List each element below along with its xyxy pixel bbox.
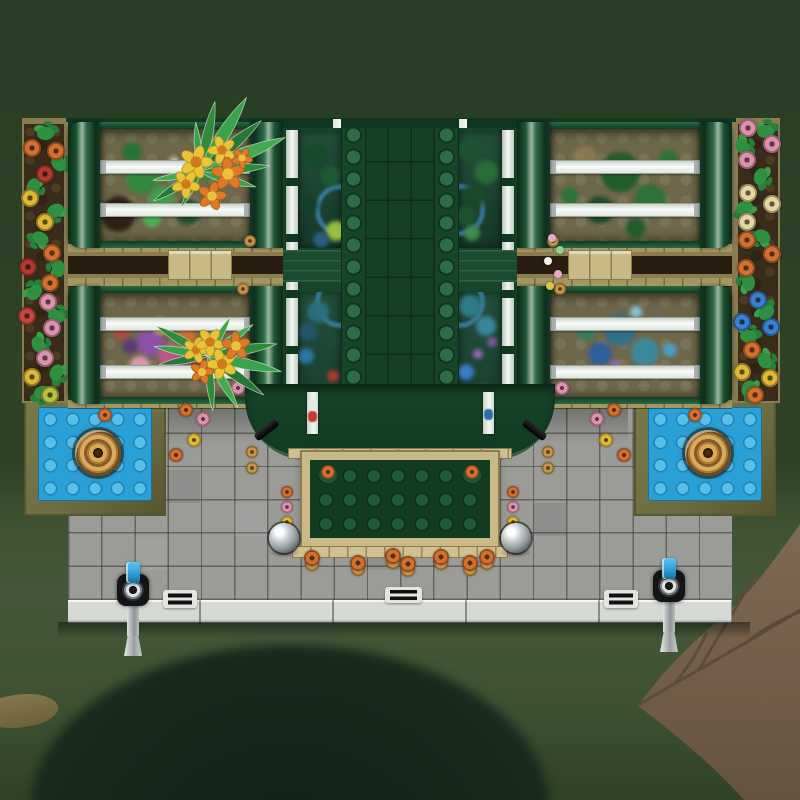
ridge-stud-column — [434, 124, 459, 424]
fountain-pool — [648, 407, 762, 501]
gold-fitting — [246, 462, 258, 474]
border-flower — [762, 318, 780, 336]
flower-bouquet — [90, 82, 310, 262]
lamp-blue-glass — [662, 558, 676, 579]
gold-fitting — [246, 446, 258, 458]
border-flower — [739, 184, 757, 202]
barrel-cap — [700, 122, 732, 248]
border-flower — [743, 341, 761, 359]
interior-plant-blob — [476, 316, 496, 336]
tiny-flower — [546, 282, 554, 290]
lamp-pole-upper — [127, 602, 139, 636]
roof-vent-tick — [333, 119, 341, 128]
plant-blob — [588, 342, 612, 366]
border-flower — [43, 319, 61, 337]
border-flower — [19, 258, 37, 276]
lego-greenhouse-model — [0, 0, 800, 800]
lamp-blue-glass — [126, 562, 140, 583]
fountain-platform — [634, 400, 776, 516]
canopy-side-flower — [507, 486, 519, 498]
tiny-flower — [548, 234, 556, 242]
interior-plant-blob — [459, 138, 482, 162]
trim-flower-orange — [479, 549, 495, 565]
barrel-cap — [700, 286, 732, 404]
drainage-grate — [163, 590, 197, 608]
barrel-cap — [517, 122, 550, 248]
gold-fitting — [554, 283, 566, 295]
lamp-pole-upper — [663, 598, 675, 632]
canopy-side-flower — [281, 486, 293, 498]
tiny-flower — [556, 246, 564, 254]
drainage-grate — [604, 590, 638, 608]
canopy-studs — [314, 464, 486, 534]
border-flower — [739, 119, 757, 137]
wing-rail — [550, 286, 700, 293]
greenhouse-wing-glass — [550, 292, 700, 398]
glazing-strip — [550, 160, 700, 174]
trim-flower-orange — [400, 556, 416, 572]
border-flower — [23, 139, 41, 157]
garden-path — [632, 252, 732, 278]
product-photo-lego-botanical-garden — [0, 0, 800, 800]
accent-flower — [590, 412, 604, 426]
canopy-flower — [321, 465, 335, 479]
accent-flower — [607, 403, 621, 417]
interior-plant-blob — [313, 232, 329, 248]
greenhouse-wing-glass — [550, 128, 700, 242]
glazing-strip — [550, 203, 700, 217]
interior-plant-blob — [459, 295, 481, 317]
glazing-strip — [550, 365, 700, 379]
plaza-tile — [533, 503, 566, 536]
minifigure — [484, 409, 493, 420]
border-flower — [36, 349, 54, 367]
border-flower — [746, 386, 764, 404]
plant-blob — [663, 343, 677, 357]
border-flower — [763, 195, 781, 213]
trim-flower-orange — [462, 555, 478, 571]
interior-plant-blob — [487, 337, 497, 347]
wing-rail — [550, 397, 700, 404]
plaza-tile — [167, 470, 200, 503]
accent-flower — [617, 448, 631, 462]
border-flower — [737, 259, 755, 277]
border-flower — [738, 151, 756, 169]
border-flower — [738, 231, 756, 249]
flower-bouquet — [98, 266, 318, 446]
wing-rail — [550, 122, 700, 129]
border-flower — [41, 274, 59, 292]
ridge-planks — [366, 124, 434, 420]
interior-plant-blob — [464, 225, 480, 241]
border-flower — [763, 135, 781, 153]
border-flower — [749, 291, 767, 309]
plaza-tile — [234, 503, 267, 536]
accent-flower — [688, 408, 702, 422]
interior-plant-blob — [327, 370, 339, 382]
accent-flower — [169, 448, 183, 462]
accent-flower — [555, 381, 569, 395]
border-flower — [47, 142, 65, 160]
tiny-flower — [554, 270, 562, 278]
border-flower — [39, 293, 57, 311]
interior-plant-blob — [322, 332, 338, 348]
trim-flower-orange — [304, 550, 320, 566]
trim-flower-orange — [350, 555, 366, 571]
plant-blob — [631, 338, 659, 366]
chrome-dome — [269, 523, 299, 553]
border-flower — [763, 245, 781, 263]
interior-plant-blob — [462, 184, 486, 208]
barrel-cap — [68, 286, 100, 404]
tiny-flower — [544, 257, 552, 265]
drainage-grate — [385, 587, 422, 603]
atrium-glass-panel — [459, 130, 502, 248]
border-flower — [36, 165, 54, 183]
roof-vent-tick — [459, 119, 467, 128]
interior-plant-blob — [474, 160, 498, 184]
border-flower — [23, 368, 41, 386]
interior-plant-blob — [459, 364, 474, 380]
trim-flower-orange — [385, 548, 401, 564]
flower-border-frame — [732, 122, 736, 403]
canopy-flower — [465, 465, 479, 479]
accent-flower — [599, 433, 613, 447]
border-flower — [761, 369, 779, 387]
border-flower — [43, 244, 61, 262]
interior-plant-blob — [473, 349, 483, 359]
canopy-side-flower — [281, 501, 293, 513]
trim-flower-orange — [433, 549, 449, 565]
chrome-dome — [501, 523, 531, 553]
border-flower — [21, 189, 39, 207]
border-flower — [18, 307, 36, 325]
fountain-basin-highlight — [676, 421, 741, 486]
border-flower — [41, 386, 59, 404]
plant-blob — [626, 218, 646, 238]
border-flower — [733, 363, 751, 381]
border-flower — [36, 213, 54, 231]
interior-plant-blob — [320, 166, 340, 186]
gold-fitting — [542, 462, 554, 474]
border-leaf-clump — [37, 127, 54, 140]
glazing-strip — [550, 317, 700, 331]
border-flower — [733, 313, 751, 331]
canopy-side-flower — [507, 501, 519, 513]
atrium-top-edge — [283, 118, 517, 128]
walkway-skylight — [568, 250, 632, 280]
wing-rail — [550, 241, 700, 248]
border-flower — [738, 213, 756, 231]
gold-fitting — [542, 446, 554, 458]
flower-border-cap — [22, 118, 66, 124]
ridge-stud-column — [341, 124, 366, 424]
model-contact-shadow — [58, 622, 750, 638]
